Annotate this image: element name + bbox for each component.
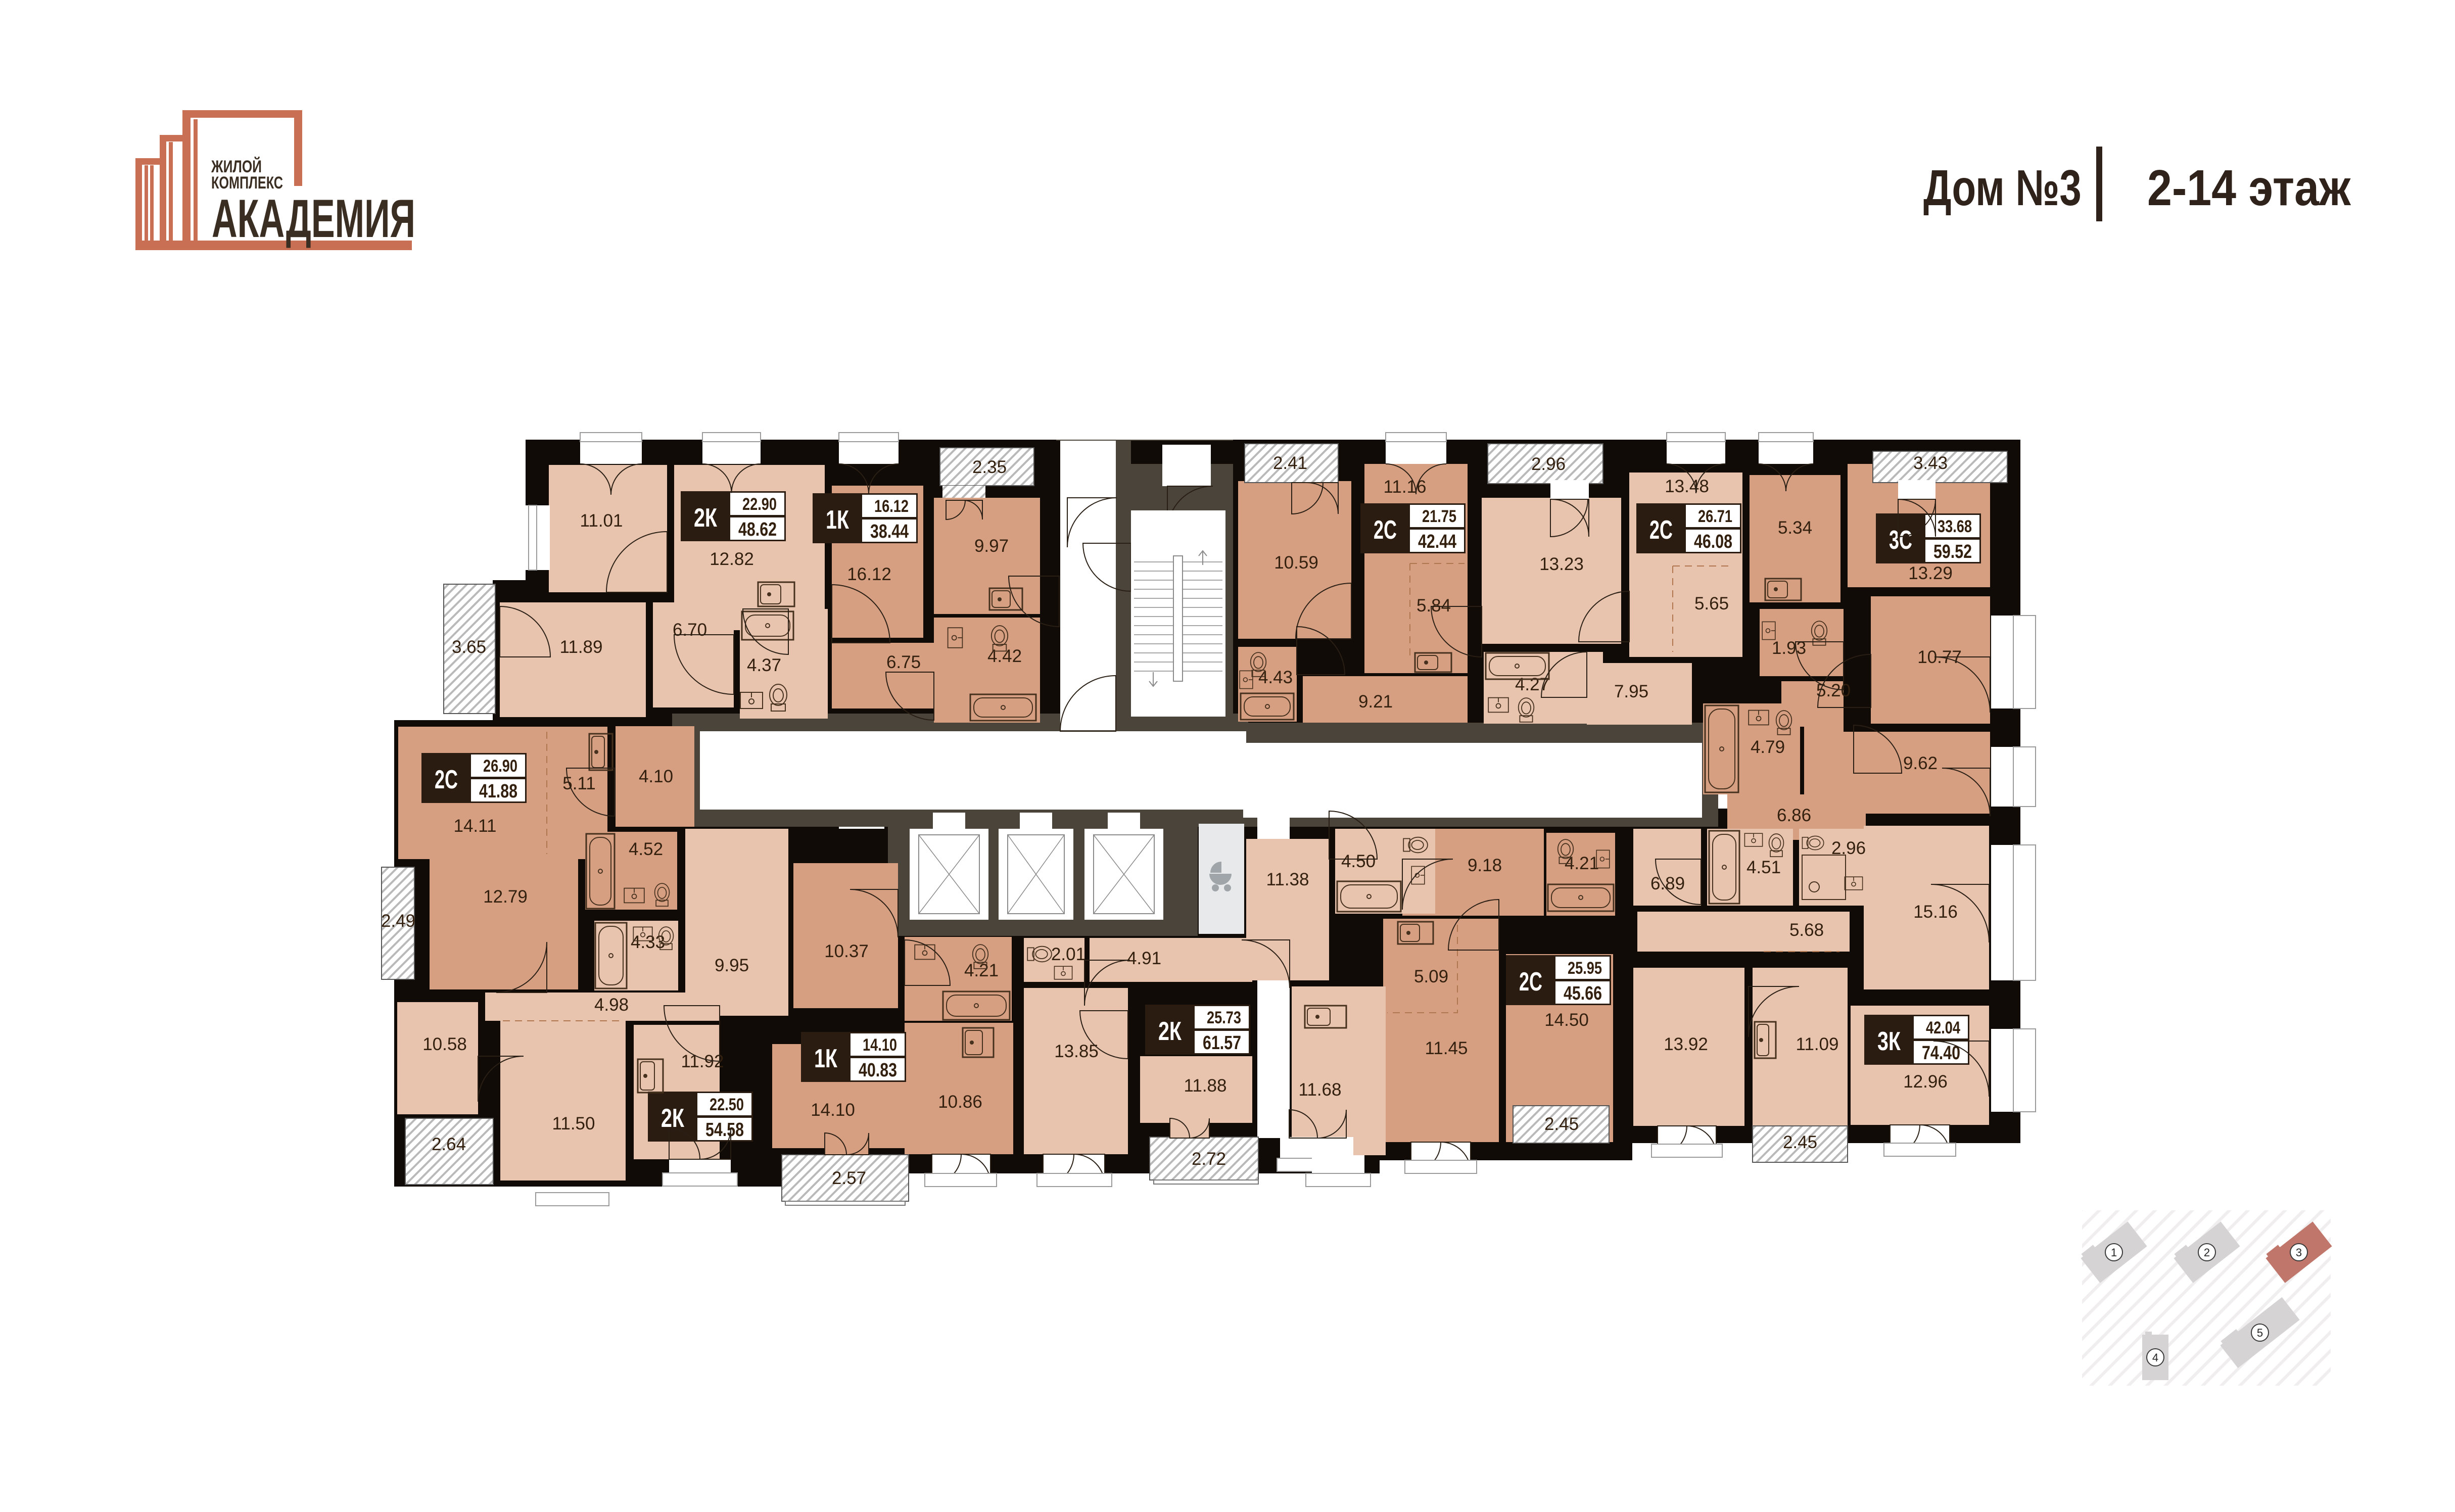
svg-text:2С: 2С [1519, 967, 1542, 997]
svg-text:59.52: 59.52 [1933, 541, 1972, 562]
svg-text:26.90: 26.90 [483, 757, 517, 776]
svg-text:21.75: 21.75 [1422, 507, 1456, 526]
svg-text:4.79: 4.79 [1751, 737, 1785, 757]
svg-text:5.68: 5.68 [1789, 920, 1824, 940]
svg-text:2.35: 2.35 [972, 457, 1007, 477]
svg-text:16.12: 16.12 [874, 497, 909, 516]
svg-text:4: 4 [2152, 1351, 2158, 1364]
svg-text:54.58: 54.58 [705, 1119, 744, 1141]
svg-text:6.70: 6.70 [673, 620, 707, 640]
svg-text:2К: 2К [694, 503, 717, 533]
svg-text:13.29: 13.29 [1908, 563, 1953, 583]
svg-text:11.68: 11.68 [1299, 1080, 1342, 1100]
svg-text:1К: 1К [826, 505, 849, 535]
svg-text:2С: 2С [1649, 515, 1673, 545]
svg-text:4.91: 4.91 [1127, 949, 1161, 968]
svg-text:2.45: 2.45 [1544, 1114, 1579, 1134]
svg-text:14.50: 14.50 [1544, 1010, 1589, 1030]
svg-text:10.58: 10.58 [422, 1034, 467, 1054]
svg-text:33.68: 33.68 [1938, 517, 1972, 536]
svg-text:1К: 1К [814, 1044, 837, 1073]
svg-text:11.09: 11.09 [1796, 1034, 1839, 1054]
svg-text:11.89: 11.89 [560, 637, 603, 657]
svg-text:42.04: 42.04 [1926, 1018, 1960, 1037]
svg-text:13.23: 13.23 [1539, 554, 1584, 574]
svg-text:10.37: 10.37 [824, 941, 869, 961]
svg-text:АКАДЕМИЯ: АКАДЕМИЯ [212, 188, 415, 249]
svg-text:2.45: 2.45 [1783, 1132, 1817, 1152]
svg-text:2.01: 2.01 [1051, 944, 1085, 964]
svg-text:2-14 этаж: 2-14 этаж [2147, 160, 2351, 216]
svg-text:3К: 3К [1877, 1027, 1901, 1056]
svg-text:3С: 3С [1889, 526, 1912, 555]
svg-text:4.51: 4.51 [1746, 858, 1781, 877]
svg-text:4.98: 4.98 [594, 995, 629, 1015]
svg-text:14.10: 14.10 [863, 1035, 897, 1055]
svg-text:5.84: 5.84 [1417, 596, 1451, 616]
svg-text:12.79: 12.79 [483, 887, 528, 907]
svg-text:22.50: 22.50 [710, 1095, 744, 1114]
svg-text:38.44: 38.44 [870, 521, 909, 542]
svg-text:9.18: 9.18 [1468, 856, 1502, 875]
svg-text:61.57: 61.57 [1203, 1032, 1241, 1054]
svg-text:2.57: 2.57 [832, 1168, 866, 1188]
svg-text:11.01: 11.01 [580, 511, 623, 531]
svg-text:2С: 2С [1374, 515, 1397, 545]
svg-text:4.10: 4.10 [639, 767, 673, 786]
svg-text:11.88: 11.88 [1184, 1076, 1227, 1096]
svg-text:10.59: 10.59 [1274, 553, 1318, 573]
svg-text:3.65: 3.65 [452, 637, 486, 657]
svg-text:14.10: 14.10 [811, 1100, 855, 1120]
svg-text:1: 1 [2111, 1246, 2117, 1259]
svg-text:12.82: 12.82 [710, 549, 754, 569]
svg-text:5.09: 5.09 [1414, 967, 1448, 986]
svg-text:1.93: 1.93 [1772, 638, 1806, 658]
svg-text:42.44: 42.44 [1418, 531, 1456, 552]
svg-text:9.97: 9.97 [974, 536, 1009, 556]
svg-text:2.96: 2.96 [1531, 454, 1566, 474]
svg-text:2.49: 2.49 [381, 911, 415, 931]
svg-text:4.27: 4.27 [1515, 675, 1549, 694]
svg-text:13.85: 13.85 [1054, 1042, 1099, 1061]
svg-text:11.38: 11.38 [1266, 870, 1309, 889]
svg-text:4.50: 4.50 [1341, 852, 1376, 871]
svg-text:25.95: 25.95 [1568, 959, 1602, 978]
svg-text:12.96: 12.96 [1903, 1072, 1948, 1092]
svg-text:2.72: 2.72 [1192, 1149, 1226, 1169]
svg-text:Дом №3: Дом №3 [1923, 160, 2082, 217]
svg-text:45.66: 45.66 [1564, 983, 1602, 1004]
svg-text:4.37: 4.37 [747, 655, 781, 675]
svg-text:5.34: 5.34 [1778, 518, 1812, 538]
svg-text:7.95: 7.95 [1614, 682, 1648, 701]
svg-text:2.41: 2.41 [1273, 453, 1307, 473]
svg-text:10.86: 10.86 [938, 1092, 982, 1112]
svg-text:11.45: 11.45 [1425, 1038, 1468, 1058]
svg-text:13.92: 13.92 [1664, 1034, 1708, 1054]
svg-text:41.88: 41.88 [479, 781, 517, 802]
svg-text:5: 5 [2257, 1327, 2263, 1339]
svg-text:40.83: 40.83 [859, 1060, 897, 1081]
svg-text:25.73: 25.73 [1207, 1008, 1241, 1027]
svg-text:2.64: 2.64 [432, 1135, 466, 1154]
svg-text:9.95: 9.95 [715, 956, 749, 975]
svg-text:6.86: 6.86 [1777, 806, 1811, 825]
svg-text:16.12: 16.12 [847, 564, 891, 584]
svg-text:2К: 2К [1158, 1017, 1182, 1046]
svg-text:4.52: 4.52 [629, 839, 663, 859]
svg-text:3: 3 [2296, 1246, 2302, 1259]
svg-text:6.75: 6.75 [886, 652, 921, 672]
svg-text:13.48: 13.48 [1665, 477, 1709, 496]
svg-text:48.62: 48.62 [738, 519, 777, 540]
svg-text:2: 2 [2204, 1246, 2210, 1259]
svg-text:5.20: 5.20 [1816, 681, 1851, 700]
svg-text:5.65: 5.65 [1694, 594, 1729, 613]
svg-text:22.90: 22.90 [742, 495, 777, 514]
svg-text:3.43: 3.43 [1913, 453, 1948, 473]
svg-text:2С: 2С [435, 765, 458, 794]
svg-text:15.16: 15.16 [1913, 902, 1958, 922]
svg-text:26.71: 26.71 [1698, 507, 1732, 526]
svg-text:11.50: 11.50 [552, 1114, 595, 1133]
svg-text:9.62: 9.62 [1903, 753, 1938, 773]
svg-text:74.40: 74.40 [1922, 1043, 1960, 1064]
svg-text:14.11: 14.11 [454, 816, 497, 836]
svg-text:9.21: 9.21 [1358, 692, 1393, 712]
svg-text:46.08: 46.08 [1694, 531, 1732, 552]
